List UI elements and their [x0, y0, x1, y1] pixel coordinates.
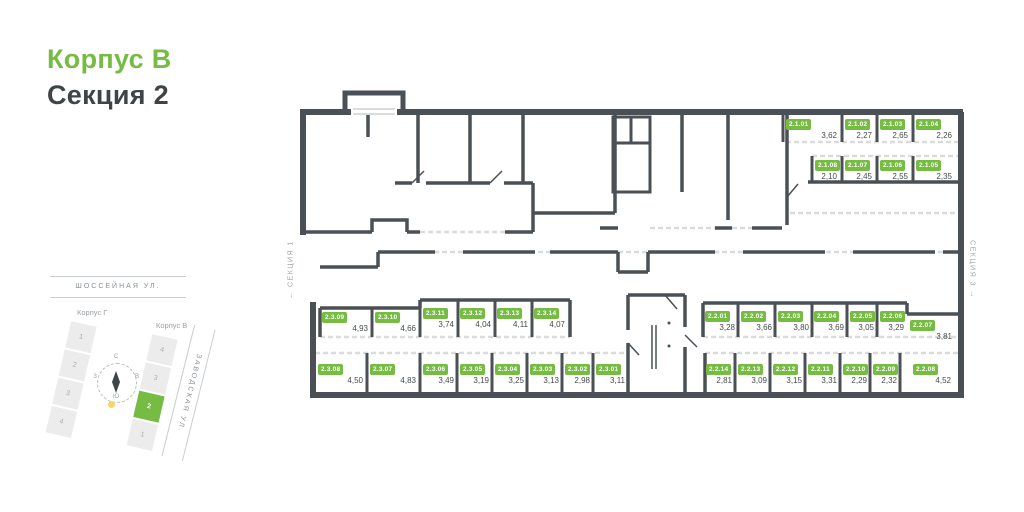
unit-area: 3,19 [473, 376, 491, 385]
unit-area: 3,09 [751, 376, 769, 385]
unit-id-badge: 2.1.08 [815, 160, 840, 171]
unit-id-badge: 2.3.04 [495, 364, 520, 375]
street-shosseynaya: ШОССЕЙНАЯ УЛ. [50, 276, 186, 298]
unit-cell[interactable]: 2.2.084,52 [903, 364, 953, 385]
minimap-section[interactable]: 1 [65, 321, 96, 353]
unit-area: 2,55 [892, 172, 910, 181]
unit-cell[interactable]: 2.3.084,50 [318, 364, 365, 385]
unit-id-badge: 2.3.12 [460, 308, 485, 319]
unit-id-badge: 2.2.14 [706, 364, 731, 375]
unit-id-badge: 2.1.05 [916, 160, 941, 171]
unit-cell[interactable]: 2.2.113,31 [808, 364, 839, 385]
unit-id-badge: 2.2.11 [808, 364, 833, 375]
unit-area: 2,98 [574, 376, 592, 385]
unit-area: 2,26 [936, 131, 954, 140]
unit-area: 3,74 [438, 320, 456, 329]
unit-area: 2,32 [881, 376, 899, 385]
unit-cell[interactable]: 2.2.053,05 [850, 311, 876, 332]
unit-id-badge: 2.2.01 [705, 311, 730, 322]
unit-cell[interactable]: 2.2.013,28 [705, 311, 737, 332]
unit-cell[interactable]: 2.2.073,81 [910, 320, 954, 341]
unit-id-badge: 2.3.01 [596, 364, 621, 375]
unit-cell[interactable]: 2.3.043,25 [495, 364, 526, 385]
unit-area: 3,80 [793, 323, 811, 332]
minimap-section[interactable]: 3 [140, 362, 171, 394]
unit-area: 3,29 [888, 323, 906, 332]
unit-area: 3,11 [610, 376, 627, 385]
unit-id-badge: 2.1.03 [880, 119, 905, 130]
page-title-building: Корпус В [47, 44, 172, 75]
unit-cell[interactable]: 2.3.124,04 [460, 308, 493, 329]
unit-area: 3,66 [756, 323, 774, 332]
unit-id-badge: 2.3.11 [423, 308, 448, 319]
unit-id-badge: 2.3.08 [318, 364, 343, 375]
unit-area: 2,65 [892, 131, 910, 140]
unit-cell[interactable]: 2.1.032,65 [880, 119, 910, 140]
unit-id-badge: 2.1.04 [916, 119, 941, 130]
compass-south-label: Ю [111, 394, 121, 400]
unit-cell[interactable]: 2.1.072,45 [845, 160, 874, 181]
floorplan-page: { "header": { "building": "Корпус В", "s… [0, 0, 1024, 512]
unit-id-badge: 2.1.07 [845, 160, 870, 171]
unit-cell[interactable]: 2.3.113,74 [423, 308, 456, 329]
unit-id-badge: 2.3.07 [370, 364, 395, 375]
minimap-building-g-strip: 1 2 3 4 [45, 321, 96, 440]
unit-area: 4,04 [475, 320, 493, 329]
unit-area: 2,10 [821, 172, 839, 181]
unit-area: 4,93 [352, 324, 370, 333]
unit-area: 3,49 [438, 376, 456, 385]
unit-cell[interactable]: 2.3.053,19 [460, 364, 491, 385]
unit-cell[interactable]: 2.3.104,66 [375, 312, 418, 333]
unit-area: 3,13 [543, 376, 561, 385]
unit-area: 2,35 [936, 172, 954, 181]
unit-id-badge: 2.1.01 [786, 119, 811, 130]
unit-id-badge: 2.3.10 [375, 312, 400, 323]
minimap-section[interactable]: 4 [146, 334, 177, 366]
unit-cell[interactable]: 2.3.094,93 [322, 312, 370, 333]
unit-cell[interactable]: 2.2.063,29 [880, 311, 906, 332]
unit-cell[interactable]: 2.1.022,27 [845, 119, 874, 140]
unit-cell[interactable]: 2.1.042,26 [916, 119, 954, 140]
floorplan: 2.1.013,62 2.1.022,27 2.1.032,65 2.1.042… [295, 85, 975, 405]
minimap-section[interactable]: 3 [52, 378, 83, 410]
unit-cell[interactable]: 2.3.033,13 [530, 364, 561, 385]
unit-id-badge: 2.3.14 [534, 308, 559, 319]
minimap-section[interactable]: 2 [59, 349, 90, 381]
compass-north-label: С [111, 354, 121, 360]
unit-cell[interactable]: 2.2.043,69 [814, 311, 846, 332]
unit-id-badge: 2.3.13 [497, 308, 522, 319]
unit-cell[interactable]: 2.3.144,07 [534, 308, 567, 329]
unit-cell[interactable]: 2.1.052,35 [916, 160, 954, 181]
unit-area: 3,05 [858, 323, 876, 332]
unit-area: 3,25 [508, 376, 526, 385]
unit-area: 4,50 [347, 376, 365, 385]
unit-area: 4,83 [400, 376, 418, 385]
unit-id-badge: 2.3.02 [565, 364, 590, 375]
minimap-building-g-label: Корпус Г [77, 308, 107, 317]
unit-cell[interactable]: 2.2.102,29 [843, 364, 869, 385]
compass-needle-icon [109, 371, 123, 393]
unit-id-badge: 2.2.02 [741, 311, 766, 322]
minimap-section-active[interactable]: 2 [133, 391, 164, 423]
unit-id-badge: 2.3.09 [322, 312, 347, 323]
unit-id-badge: 2.2.08 [913, 364, 938, 375]
unit-cell[interactable]: 2.2.142,81 [706, 364, 734, 385]
unit-id-badge: 2.3.06 [423, 364, 448, 375]
unit-cell[interactable]: 2.2.133,09 [738, 364, 769, 385]
unit-cell[interactable]: 2.2.023,66 [741, 311, 774, 332]
unit-id-badge: 2.2.04 [814, 311, 839, 322]
unit-cell[interactable]: 2.1.082,10 [815, 160, 839, 181]
compass-east-label: В [132, 374, 142, 380]
unit-id-badge: 2.1.06 [880, 160, 905, 171]
unit-area: 4,11 [513, 320, 530, 329]
minimap-section[interactable]: 4 [46, 406, 77, 438]
unit-area: 2,45 [856, 172, 874, 181]
unit-cell[interactable]: 2.3.063,49 [423, 364, 456, 385]
unit-cell[interactable]: 2.2.123,15 [773, 364, 804, 385]
unit-id-badge: 2.3.05 [460, 364, 485, 375]
unit-area: 3,69 [828, 323, 846, 332]
minimap-building-v-label: Корпус В [156, 321, 187, 330]
unit-cell[interactable]: 2.1.013,62 [786, 119, 839, 140]
page-title-section: Секция 2 [47, 80, 169, 111]
unit-area: 3,81 [936, 332, 954, 341]
unit-id-badge: 2.3.03 [530, 364, 555, 375]
compass-west-label: З [90, 374, 100, 380]
unit-id-badge: 2.2.13 [738, 364, 763, 375]
unit-area: 3,31 [821, 376, 839, 385]
unit-area: 4,52 [935, 376, 953, 385]
unit-area: 2,29 [851, 376, 869, 385]
unit-area: 3,62 [821, 131, 839, 140]
unit-id-badge: 2.2.06 [880, 311, 905, 322]
unit-id-badge: 2.2.09 [873, 364, 898, 375]
unit-cell[interactable]: 2.1.062,55 [880, 160, 910, 181]
unit-area: 4,66 [400, 324, 418, 333]
unit-cell[interactable]: 2.3.074,83 [370, 364, 418, 385]
sun-marker-icon [108, 401, 115, 408]
unit-id-badge: 2.2.10 [843, 364, 868, 375]
unit-area: 2,27 [856, 131, 874, 140]
unit-area: 2,81 [716, 376, 734, 385]
unit-cell[interactable]: 2.3.022,98 [565, 364, 592, 385]
unit-area: 3,15 [786, 376, 804, 385]
unit-cell[interactable]: 2.2.092,32 [873, 364, 899, 385]
unit-id-badge: 2.2.05 [850, 311, 875, 322]
unit-id-badge: 2.1.02 [845, 119, 870, 130]
unit-cell[interactable]: 2.3.134,11 [497, 308, 530, 329]
unit-area: 4,07 [549, 320, 567, 329]
minimap-section[interactable]: 1 [127, 419, 158, 451]
unit-id-badge: 2.2.07 [910, 320, 935, 331]
section-1-arrow-label: ← СЕКЦИЯ 1 [288, 225, 295, 315]
unit-area: 3,28 [719, 323, 737, 332]
unit-id-badge: 2.2.03 [778, 311, 803, 322]
unit-cell[interactable]: 2.3.013,11 [596, 364, 627, 385]
unit-cell[interactable]: 2.2.033,80 [778, 311, 811, 332]
unit-id-badge: 2.2.12 [773, 364, 798, 375]
